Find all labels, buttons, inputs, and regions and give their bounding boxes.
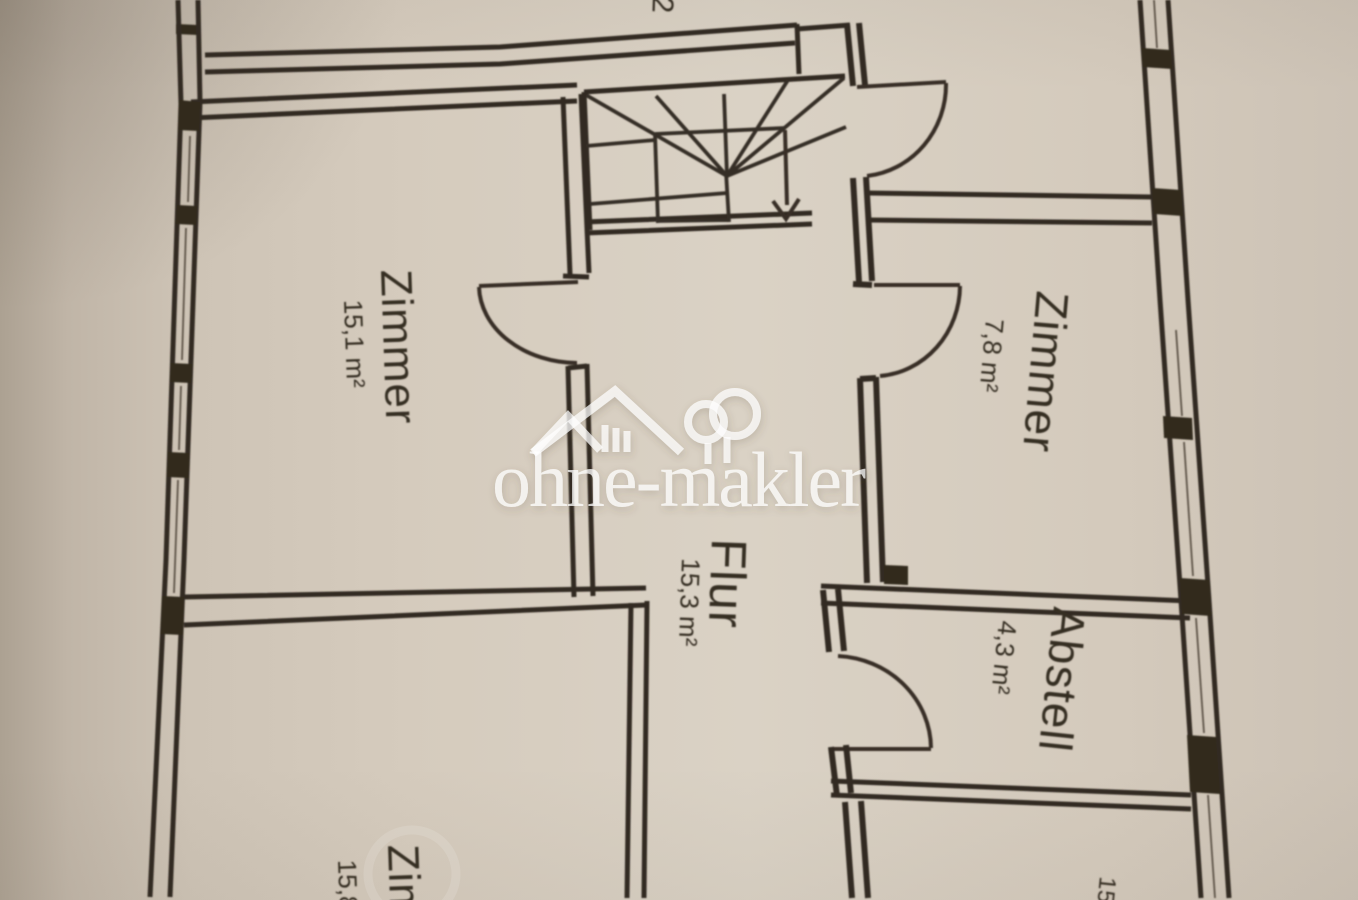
svg-text:15,3 m²: 15,3 m² <box>673 558 706 647</box>
svg-text:ohne-makler: ohne-makler <box>492 436 866 523</box>
svg-text:15,8 m²: 15,8 m² <box>332 859 365 900</box>
svg-text:Zimmer: Zimmer <box>378 844 432 900</box>
svg-text:2: 2 <box>645 0 679 14</box>
svg-text:7,8 m²: 7,8 m² <box>974 317 1010 393</box>
svg-text:Zimmer: Zimmer <box>371 269 425 426</box>
svg-text:15,1 m²: 15,1 m² <box>338 299 371 388</box>
svg-text:Flur: Flur <box>698 538 757 630</box>
